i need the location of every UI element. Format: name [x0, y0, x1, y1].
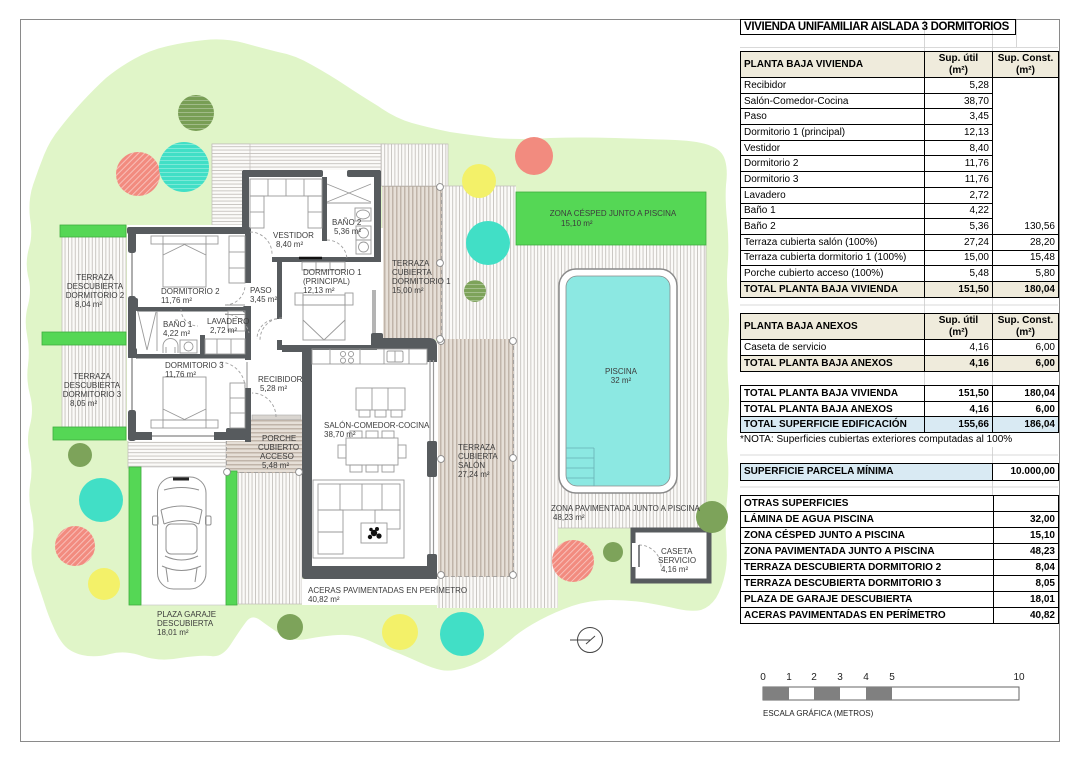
svg-text:TERRAZA: TERRAZA: [392, 259, 430, 268]
svg-text:8,05 m²: 8,05 m²: [70, 399, 97, 408]
svg-text:RECIBIDOR: RECIBIDOR: [258, 375, 303, 384]
svg-text:PLAZA GARAJE: PLAZA GARAJE: [157, 610, 216, 619]
svg-text:5,28 m²: 5,28 m²: [260, 384, 287, 393]
svg-text:ZONA CÉSPED JUNTO A PISCINA: ZONA CÉSPED JUNTO A PISCINA: [550, 209, 677, 218]
svg-text:8,04 m²: 8,04 m²: [75, 300, 102, 309]
svg-text:11,76 m²: 11,76 m²: [161, 296, 192, 305]
svg-text:CUBIERTA: CUBIERTA: [392, 268, 432, 277]
svg-text:27,24 m²: 27,24 m²: [458, 470, 490, 479]
svg-text:15,00 m²: 15,00 m²: [392, 286, 424, 295]
svg-text:18,01 m²: 18,01 m²: [157, 628, 189, 637]
svg-text:(PRINCIPAL): (PRINCIPAL): [303, 277, 350, 286]
svg-text:ESCALA GRÁFICA (METROS): ESCALA GRÁFICA (METROS): [763, 709, 874, 718]
svg-text:DESCUBIERTA: DESCUBIERTA: [64, 381, 121, 390]
svg-text:4: 4: [863, 672, 869, 683]
svg-text:TERRAZA: TERRAZA: [76, 273, 114, 282]
svg-text:1: 1: [786, 672, 792, 683]
svg-text:LAVADERO: LAVADERO: [207, 317, 249, 326]
svg-text:CUBIERTA: CUBIERTA: [458, 452, 498, 461]
svg-text:8,40 m²: 8,40 m²: [276, 240, 303, 249]
svg-text:DESCUBIERTA: DESCUBIERTA: [67, 282, 124, 291]
svg-text:TERRAZA: TERRAZA: [73, 372, 111, 381]
svg-text:4,22 m²: 4,22 m²: [163, 329, 190, 338]
svg-text:SERVICIO: SERVICIO: [658, 556, 696, 565]
svg-text:15,10 m²: 15,10 m²: [561, 219, 593, 228]
svg-text:ACCESO: ACCESO: [260, 452, 294, 461]
svg-text:VESTIDOR: VESTIDOR: [273, 231, 314, 240]
svg-text:DORMITORIO 3: DORMITORIO 3: [165, 361, 224, 370]
svg-text:PISCINA: PISCINA: [605, 367, 638, 376]
svg-text:5,48 m²: 5,48 m²: [262, 461, 289, 470]
svg-text:2,72 m²: 2,72 m²: [210, 326, 237, 335]
svg-text:DESCUBIERTA: DESCUBIERTA: [157, 619, 214, 628]
svg-text:0: 0: [760, 672, 766, 683]
svg-text:11,76 m²: 11,76 m²: [165, 370, 196, 379]
svg-text:2: 2: [811, 672, 817, 683]
svg-text:4,16 m²: 4,16 m²: [661, 565, 688, 574]
svg-text:PASO: PASO: [250, 286, 272, 295]
svg-text:DORMITORIO 2: DORMITORIO 2: [161, 287, 220, 296]
svg-text:12,13 m²: 12,13 m²: [303, 286, 335, 295]
svg-text:ACERAS PAVIMENTADAS EN PERÍMET: ACERAS PAVIMENTADAS EN PERÍMETRO: [308, 586, 467, 595]
svg-text:PORCHE: PORCHE: [262, 434, 296, 443]
svg-text:10: 10: [1013, 672, 1025, 683]
svg-text:5: 5: [889, 672, 895, 683]
svg-text:DORMITORIO 1: DORMITORIO 1: [392, 277, 451, 286]
svg-text:ZONA PAVIMENTADA JUNTO A PISCI: ZONA PAVIMENTADA JUNTO A PISCINA: [551, 504, 700, 513]
svg-text:40,82 m²: 40,82 m²: [308, 595, 340, 604]
svg-text:TERRAZA: TERRAZA: [458, 443, 496, 452]
svg-text:BAÑO 1: BAÑO 1: [163, 320, 193, 329]
svg-text:DORMITORIO 1: DORMITORIO 1: [303, 268, 362, 277]
svg-text:SALÓN: SALÓN: [458, 461, 485, 470]
svg-text:CUBIERTO: CUBIERTO: [258, 443, 299, 452]
svg-text:32 m²: 32 m²: [611, 376, 632, 385]
svg-text:BAÑO 2: BAÑO 2: [332, 218, 362, 227]
svg-text:3,45 m²: 3,45 m²: [250, 295, 277, 304]
svg-text:38,70 m²: 38,70 m²: [324, 430, 356, 439]
svg-text:5,36 m²: 5,36 m²: [334, 227, 361, 236]
svg-text:CASETA: CASETA: [661, 547, 693, 556]
svg-text:DORMITORIO 2: DORMITORIO 2: [66, 291, 125, 300]
svg-text:48,23 m²: 48,23 m²: [553, 513, 585, 522]
svg-text:DORMITORIO 3: DORMITORIO 3: [63, 390, 122, 399]
svg-text:3: 3: [837, 672, 843, 683]
svg-text:SALÓN-COMEDOR-COCINA: SALÓN-COMEDOR-COCINA: [324, 421, 430, 430]
